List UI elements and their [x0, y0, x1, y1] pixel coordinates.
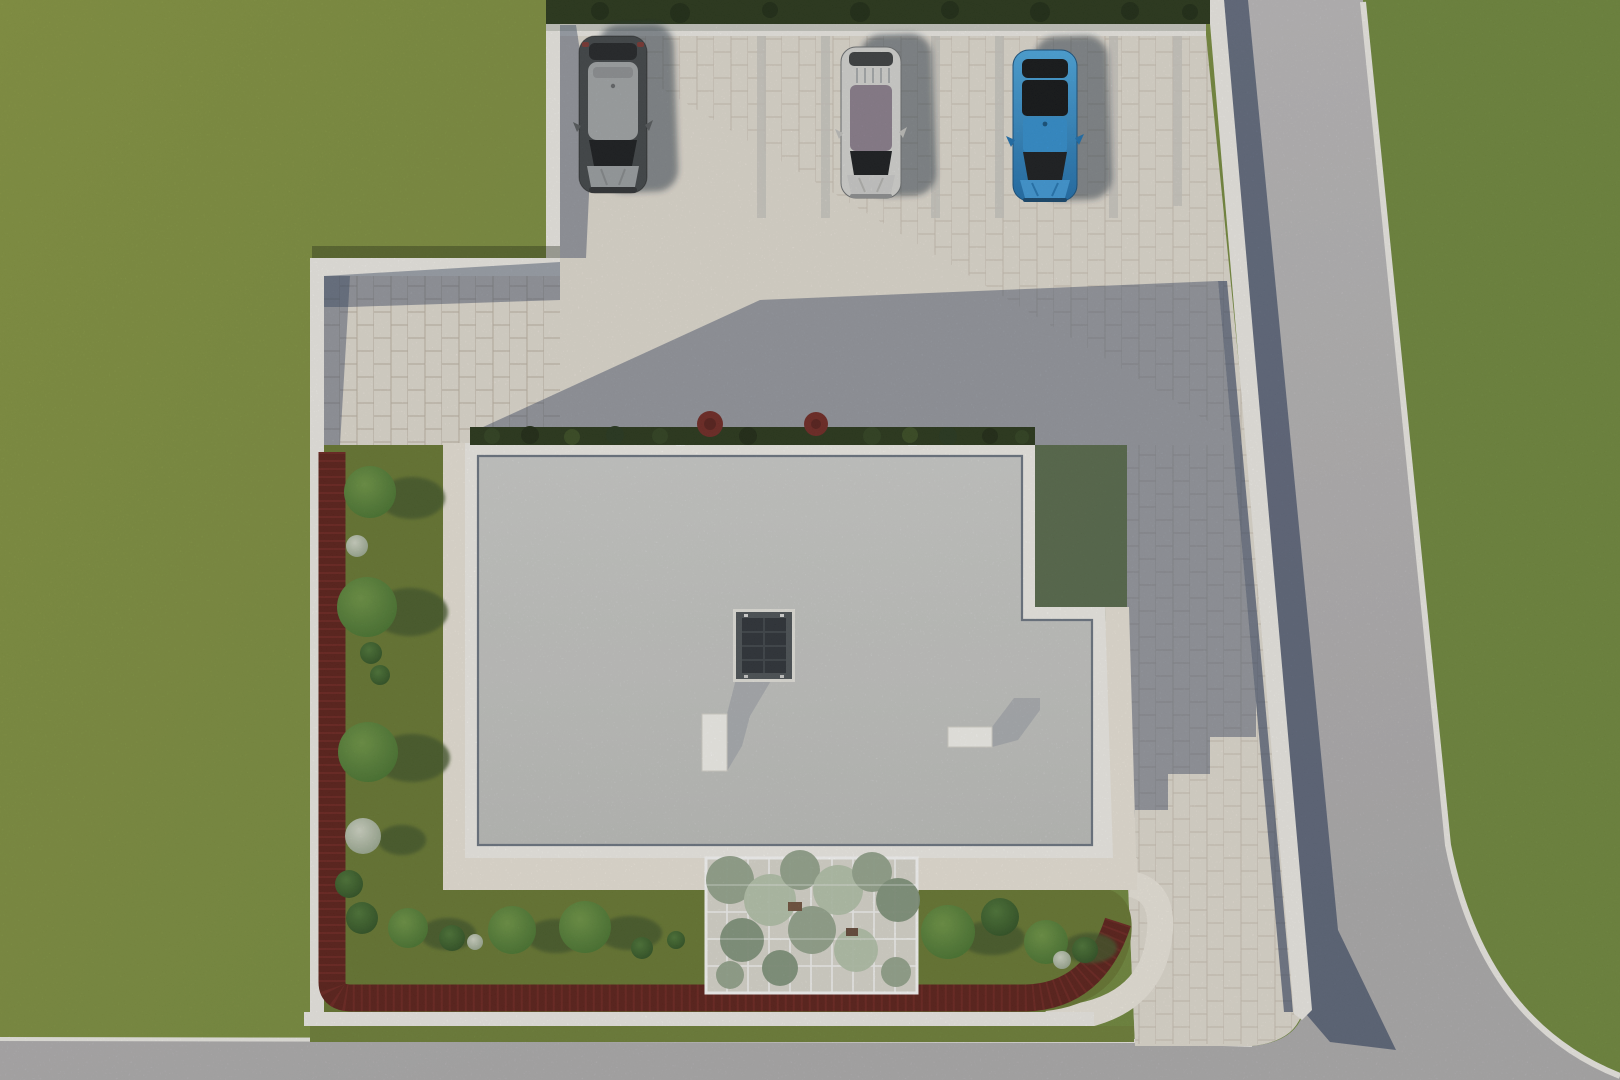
noise-overlay [0, 0, 1620, 1080]
grain-light [0, 0, 1620, 1080]
aerial-render-canvas [0, 0, 1620, 1080]
site-plan-render [0, 0, 1620, 1080]
